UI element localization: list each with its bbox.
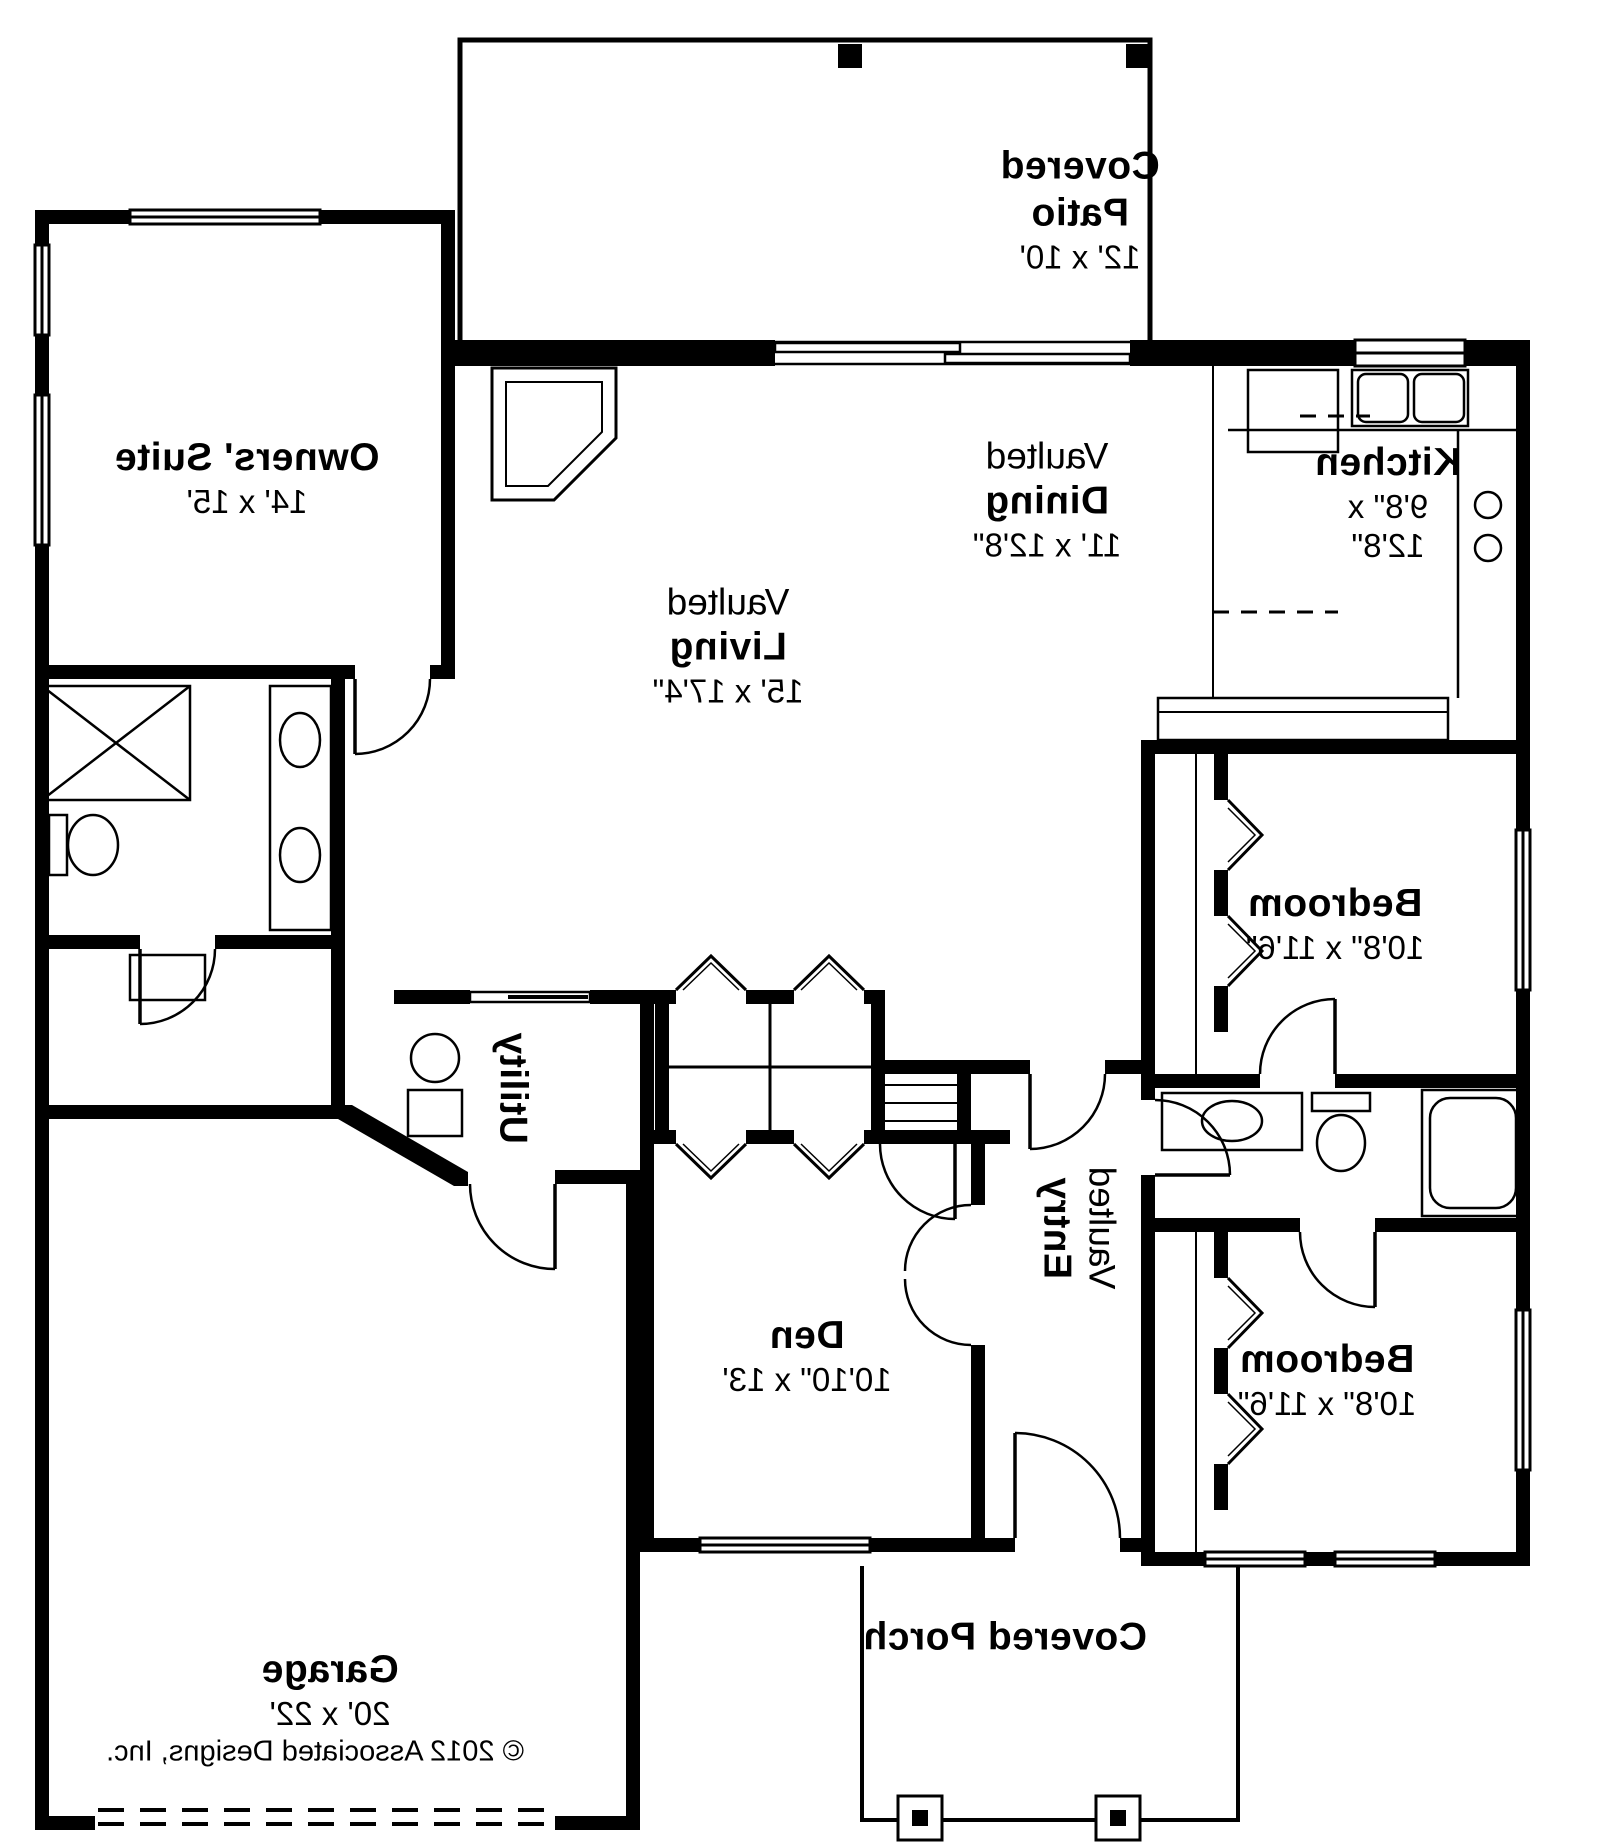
room-name: Covered Porch <box>863 1615 1147 1662</box>
toilet <box>49 815 118 875</box>
room-name: Bedroom <box>1246 881 1425 928</box>
room-prefix: Vaulted <box>1079 1167 1123 1290</box>
room-label-utility: Utility <box>489 1032 536 1144</box>
kitchen-sink <box>1352 370 1468 426</box>
room-dims: 12'8" <box>1315 526 1462 566</box>
bath-toilet <box>1312 1093 1370 1171</box>
floor-plan: Covered Patio 12' x 10' Owners' Suite 14… <box>0 0 1600 1844</box>
room-name: Patio <box>1000 190 1160 237</box>
room-prefix: Vaulted <box>653 581 804 625</box>
room-label-living: Vaulted Living 15' x 17'4" <box>653 581 804 712</box>
bathtub <box>1422 1090 1524 1216</box>
copyright-line: © 2012 Associated Designs, Inc. <box>106 1735 524 1770</box>
room-label-dining: Vaulted Dining 11' x 12'8" <box>973 435 1121 566</box>
room-name: Garage <box>261 1647 398 1694</box>
room-label-den: Den 10'10" x 13' <box>722 1313 891 1399</box>
room-label-entry: Vaulted Entry <box>1032 1167 1123 1290</box>
garage-door-dashes <box>98 1810 552 1824</box>
room-name: Bedroom <box>1238 1337 1417 1384</box>
sliding-door <box>775 342 1130 364</box>
room-label-garage: Garage 20' x 22' <box>261 1647 398 1733</box>
room-dims: 10'8" x 11'6" <box>1246 928 1425 968</box>
room-name: Owners' Suite <box>114 435 379 482</box>
room-label-kitchen: Kitchen 9'8" x 12'8" <box>1315 440 1462 566</box>
room-label-covered-porch: Covered Porch <box>863 1615 1147 1662</box>
room-dims: 15' x 17'4" <box>653 672 804 712</box>
water-heater <box>408 1034 462 1136</box>
room-name: Den <box>722 1313 891 1360</box>
room-dims: 11' x 12'8" <box>973 526 1121 566</box>
room-prefix: Vaulted <box>973 435 1121 479</box>
porch-outline <box>862 1566 1238 1820</box>
room-name: Utility <box>489 1032 536 1144</box>
room-dims: 14' x 15' <box>114 482 379 522</box>
room-dims: 10'10" x 13' <box>722 1360 891 1400</box>
room-label-owners-suite: Owners' Suite 14' x 15' <box>114 435 379 521</box>
shower <box>42 686 190 800</box>
room-label-bedroom-right: Bedroom 10'8" x 11'6" <box>1246 881 1425 967</box>
room-dims: 9'8" x <box>1315 487 1462 527</box>
room-name: Kitchen <box>1315 440 1462 487</box>
bath-vanity <box>1162 1093 1302 1150</box>
cooktop <box>1475 492 1501 561</box>
room-dims: 10'8" x 11'6" <box>1238 1384 1417 1424</box>
double-vanity <box>270 686 331 930</box>
room-label-bedroom-bottom: Bedroom 10'8" x 11'6" <box>1238 1337 1417 1423</box>
room-name: Dining <box>973 479 1121 526</box>
copyright-text: © 2012 Associated Designs, Inc. <box>106 1735 524 1770</box>
fireplace <box>492 368 616 500</box>
room-name: Covered <box>1000 143 1160 190</box>
room-label-covered-patio: Covered Patio 12' x 10' <box>1000 143 1160 276</box>
room-dims: 12' x 10' <box>1000 237 1160 277</box>
room-name: Entry <box>1032 1167 1079 1290</box>
room-name: Living <box>653 625 804 672</box>
patio-posts <box>838 44 1150 68</box>
room-dims: 20' x 22' <box>261 1694 398 1734</box>
